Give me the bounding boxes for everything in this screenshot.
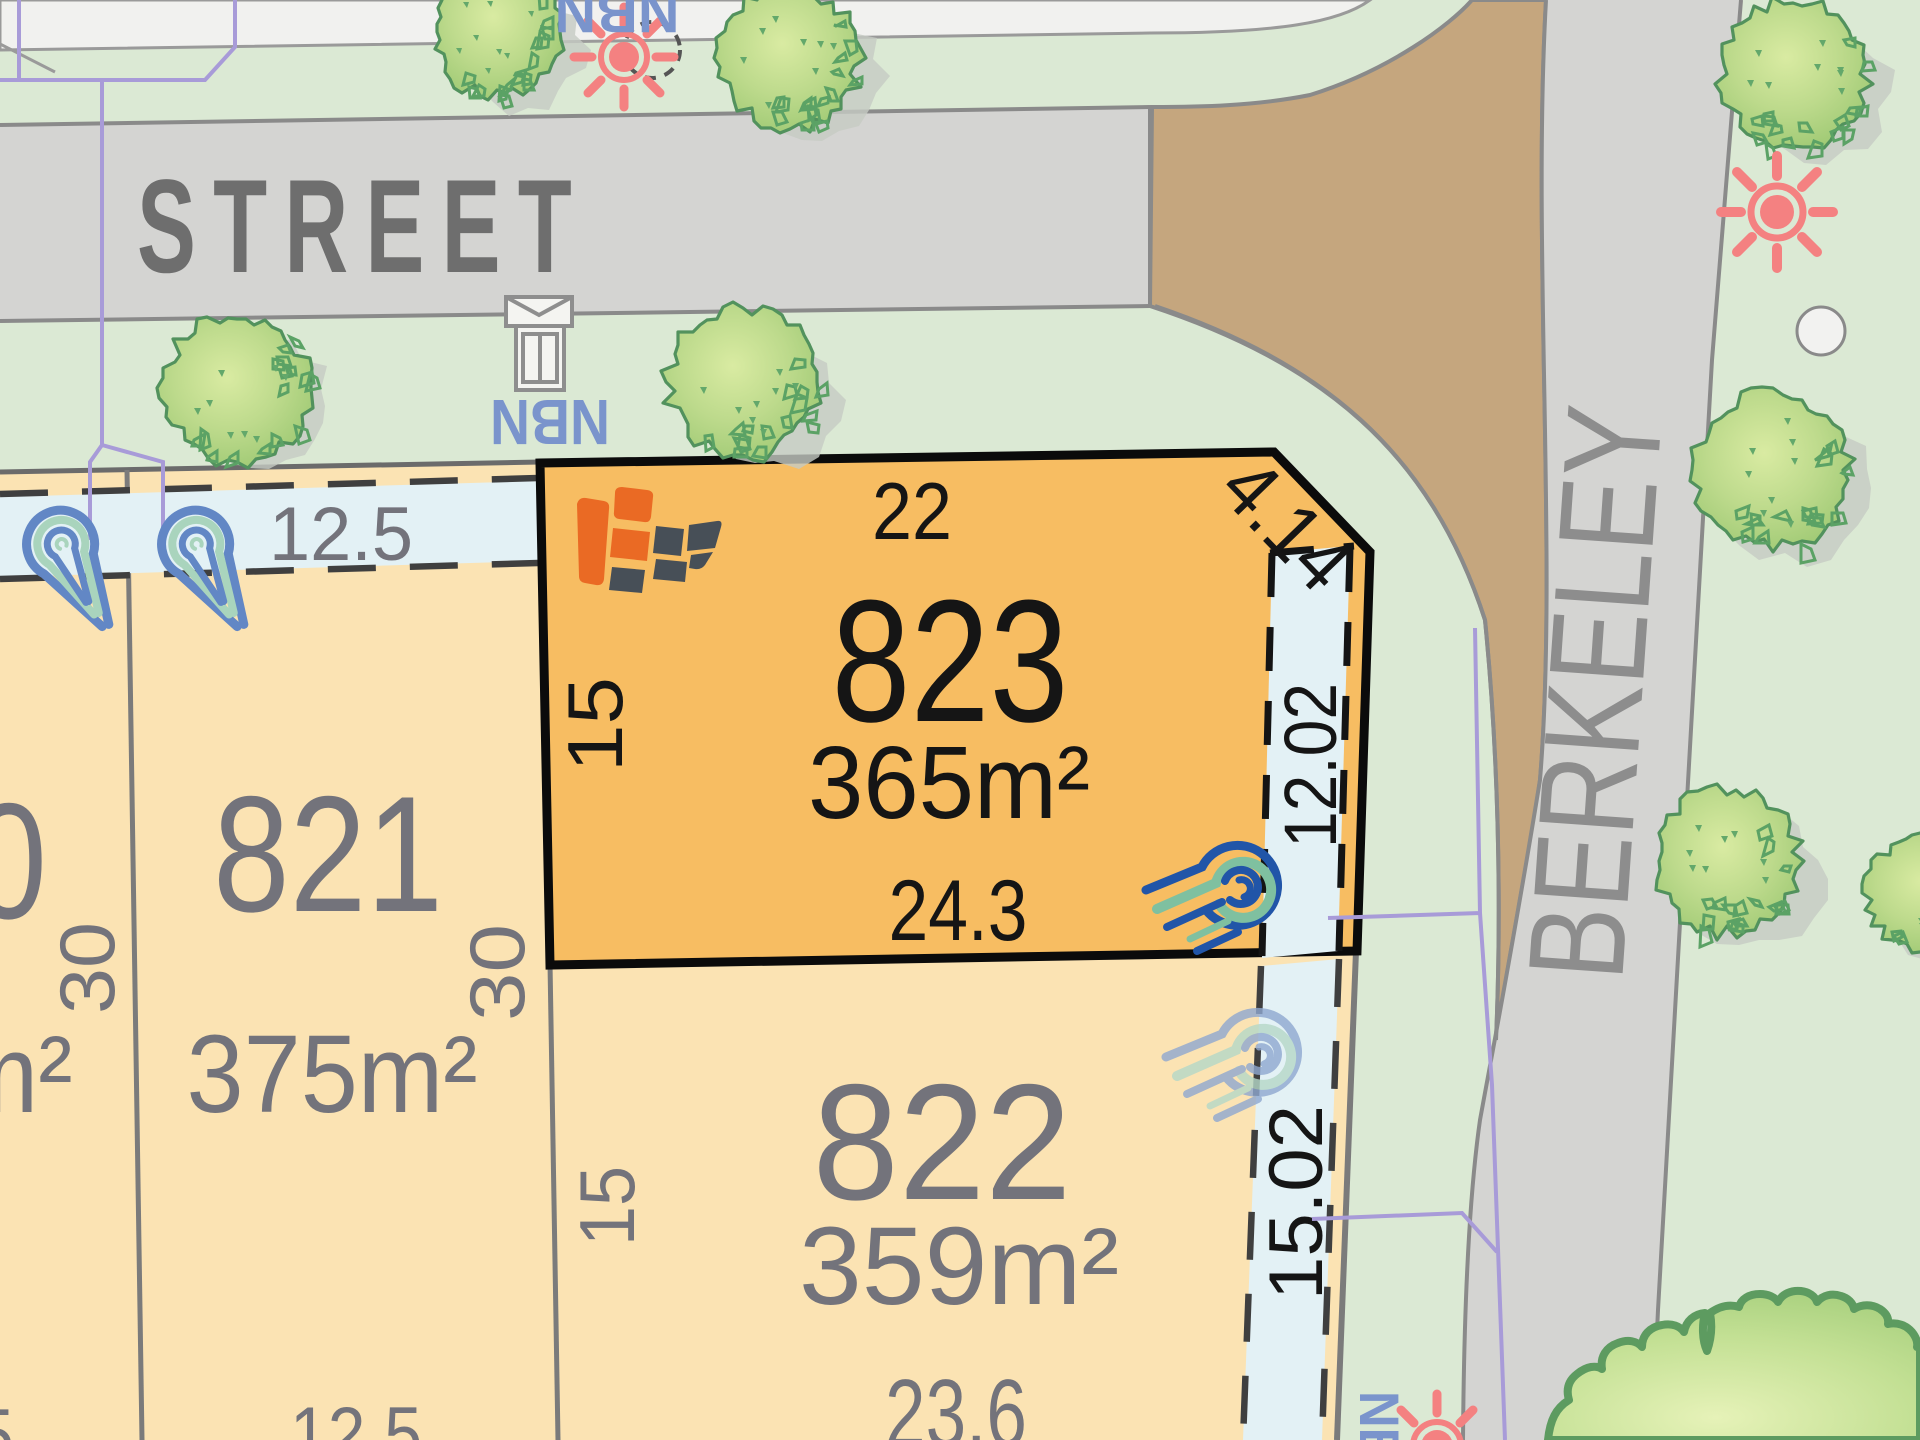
svg-text:365m²: 365m² [808, 725, 1090, 840]
svg-text:NBN: NBN [490, 386, 610, 458]
svg-text:12.5: 12.5 [269, 492, 413, 577]
svg-text:24.3: 24.3 [889, 863, 1028, 959]
svg-text:821: 821 [213, 762, 443, 946]
svg-text:22: 22 [872, 467, 952, 557]
svg-text:NBN: NBN [1348, 1391, 1411, 1440]
svg-text:STREET: STREET [137, 153, 589, 301]
svg-text:12.5: 12.5 [0, 1394, 14, 1440]
svg-text:380m²: 380m² [0, 1013, 73, 1136]
svg-text:820: 820 [0, 769, 47, 953]
svg-text:NBN: NBN [555, 0, 680, 44]
svg-text:12.02: 12.02 [1269, 683, 1352, 848]
svg-text:15.02: 15.02 [1254, 1105, 1339, 1300]
svg-text:12.5: 12.5 [290, 1392, 422, 1440]
svg-text:30: 30 [453, 924, 541, 1021]
svg-text:359m²: 359m² [799, 1205, 1119, 1328]
svg-text:30: 30 [43, 922, 131, 1014]
svg-text:375m²: 375m² [187, 1013, 478, 1136]
svg-text:23.6: 23.6 [885, 1360, 1027, 1440]
svg-text:15: 15 [563, 1166, 651, 1246]
svg-text:15: 15 [551, 677, 639, 772]
